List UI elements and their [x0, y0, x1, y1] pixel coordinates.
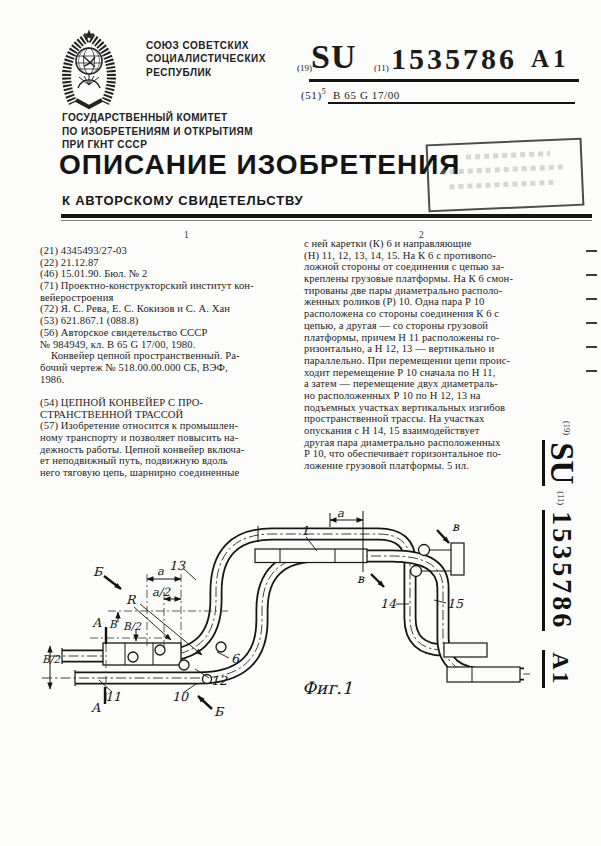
figure-label-12: 12 [211, 673, 228, 688]
roller [411, 566, 422, 577]
roller [128, 652, 138, 662]
section-label-b-bottom: Б [214, 704, 225, 719]
section-label-a-top: А [92, 615, 102, 630]
section-label-v-bottom: в [357, 571, 365, 586]
roller [179, 660, 189, 670]
figure-caption: Фиг.1 [302, 678, 353, 698]
section-label-a-bottom: А [91, 700, 101, 715]
dim-label-b: В [109, 618, 118, 630]
figure-label-1: 1 [301, 523, 309, 538]
figure-label-6: 6 [231, 651, 240, 666]
figure-label-radius: R [126, 592, 137, 607]
figure-label-15: 15 [447, 596, 464, 611]
roller [155, 645, 165, 655]
figure-label-14: 14 [380, 596, 397, 611]
roller [419, 545, 430, 556]
figure-label-11: 11 [105, 689, 121, 704]
figure-label-10: 10 [172, 689, 189, 704]
dim-label-b-half-edge: В/2 [42, 653, 61, 665]
dim-label-b-half: В/2 [123, 620, 142, 632]
dim-label-a-half: a/2 [152, 585, 171, 599]
patent-document-page: СОЮЗ СОВЕТСКИХ СОЦИАЛИСТИЧЕСКИХ РЕСПУБЛИ… [0, 0, 601, 846]
dim-label-a-left: a [157, 564, 164, 578]
figure-1-drawing: 1 6 10 11 12 13 14 15 R a a/2 a В В/2 В/… [0, 0, 601, 846]
top-carriage [255, 549, 367, 563]
roller [216, 642, 226, 652]
figure-label-13: 13 [169, 558, 186, 573]
dim-label-a-right: a [337, 506, 344, 520]
section-label-v-top: в [452, 519, 460, 534]
section-label-b-top: Б [93, 564, 104, 579]
